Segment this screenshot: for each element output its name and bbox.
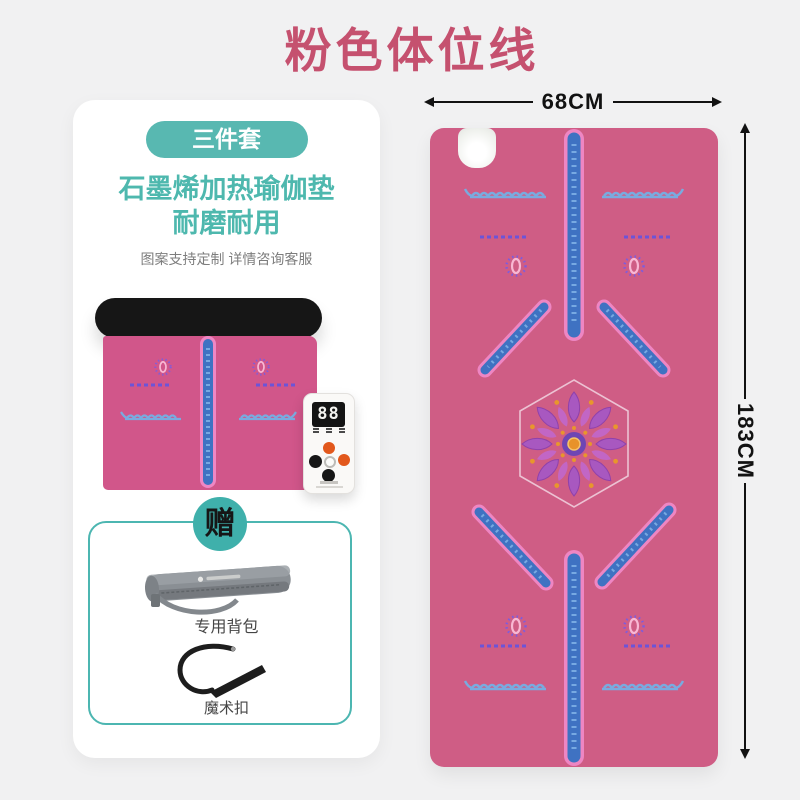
height-label-wrap: 183CM: [707, 399, 783, 483]
remote-caption: [304, 481, 354, 488]
remote-control-image: 88: [303, 393, 355, 494]
product-heading-line1: 石墨烯加热瑜伽垫: [73, 172, 380, 206]
backpack-image: [139, 558, 301, 620]
velcro-strap-image: [159, 640, 281, 698]
gift-badge: 赠: [193, 497, 247, 551]
product-poster: 粉色体位线 三件套 石墨烯加热瑜伽垫 耐磨耐用 图案支持定制 详情咨询客服: [0, 0, 800, 800]
page-title: 粉色体位线: [0, 12, 800, 81]
width-dimension: 68CM: [424, 90, 722, 114]
arrow-right-icon: [712, 97, 722, 107]
arrow-left-icon: [424, 97, 434, 107]
lotus-icon: [155, 359, 170, 374]
product-heading: 石墨烯加热瑜伽垫 耐磨耐用: [73, 172, 380, 240]
info-card: 三件套 石墨烯加热瑜伽垫 耐磨耐用 图案支持定制 详情咨询客服: [73, 100, 380, 758]
velcro-strap-label: 魔术扣: [73, 697, 380, 718]
dimension-line: [744, 133, 746, 399]
arrow-up-icon: [740, 123, 750, 133]
remote-indicator-lights: [304, 431, 354, 433]
set-badge: 三件套: [146, 121, 308, 158]
width-label: 68CM: [542, 89, 605, 115]
lotus-icon: [507, 257, 526, 276]
dimension-line: [434, 101, 533, 103]
mat-preview-pattern: [103, 336, 317, 490]
product-heading-line2: 耐磨耐用: [73, 206, 380, 240]
remote-plus-button: [338, 454, 350, 466]
mandala-icon: [522, 392, 626, 496]
arrow-down-icon: [740, 749, 750, 759]
yoga-mat-image: [430, 128, 718, 767]
lotus-icon: [625, 617, 644, 636]
remote-power-button: [323, 442, 335, 454]
lotus-icon: [507, 617, 526, 636]
height-label: 183CM: [732, 403, 758, 479]
mat-pattern: [430, 128, 718, 767]
backpack-label: 专用背包: [73, 613, 380, 637]
lotus-icon: [625, 257, 644, 276]
remote-ok-button: [324, 456, 336, 468]
customization-note: 图案支持定制 详情咨询客服: [73, 249, 380, 269]
remote-minus-button: [309, 455, 322, 468]
height-dimension: 183CM: [733, 123, 757, 759]
dimension-line: [744, 483, 746, 749]
dimension-line: [613, 101, 712, 103]
rolled-mat-image: [95, 298, 322, 338]
remote-display: 88: [312, 402, 345, 427]
mat-preview-image: [103, 336, 317, 490]
lotus-icon: [253, 359, 268, 374]
controller-pocket: [458, 128, 496, 168]
